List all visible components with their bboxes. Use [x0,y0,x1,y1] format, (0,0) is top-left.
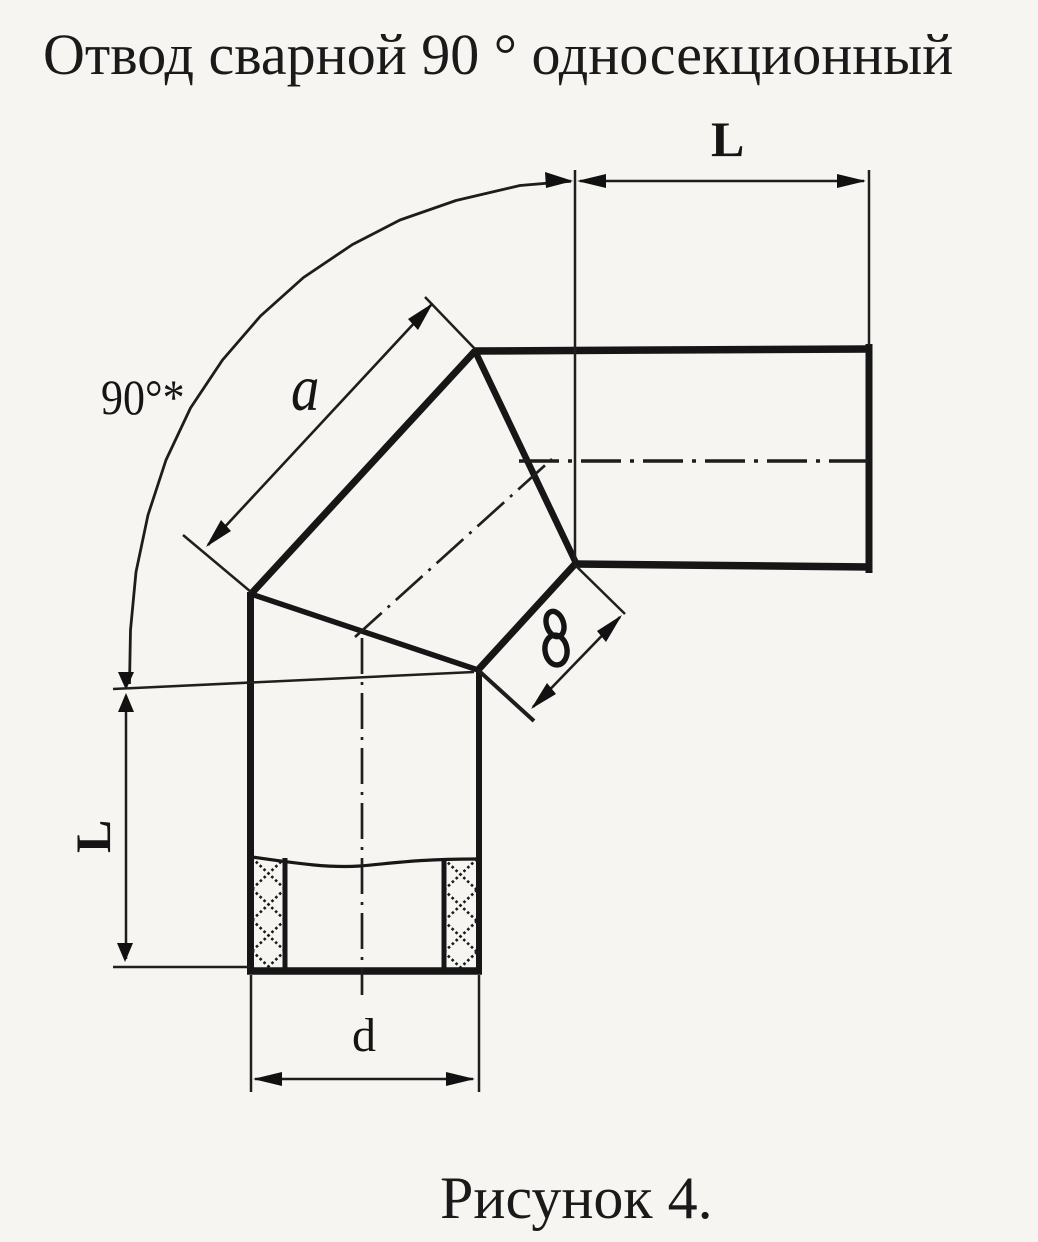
svg-text:Рисунок 4.: Рисунок 4. [440,1165,713,1231]
svg-text:Отвод сварной 90 ° односекцион: Отвод сварной 90 ° односекционный [43,22,953,87]
svg-text:d: d [352,1009,376,1062]
svg-text:L: L [711,111,744,167]
svg-text:L: L [65,820,121,853]
svg-text:a: a [291,352,319,425]
svg-text:90°*: 90°* [101,370,185,425]
